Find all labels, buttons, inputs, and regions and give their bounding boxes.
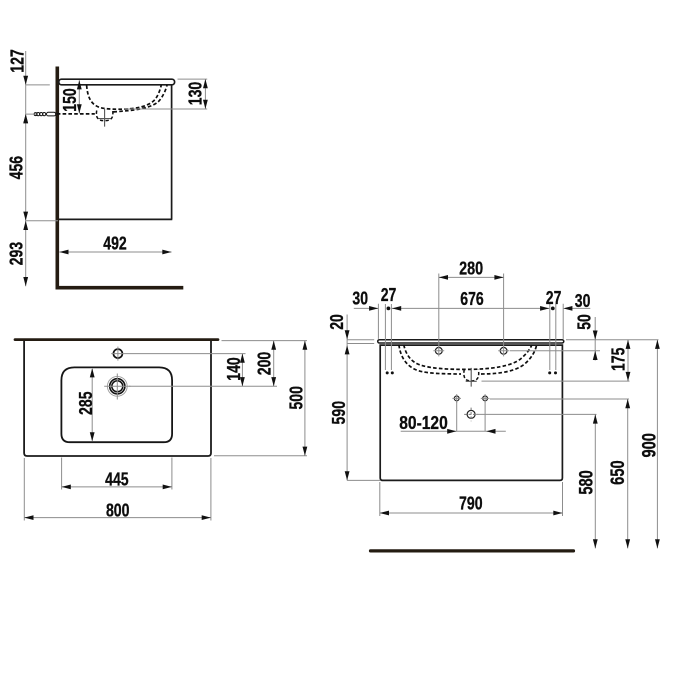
svg-text:200: 200 bbox=[255, 352, 275, 376]
svg-text:285: 285 bbox=[76, 391, 96, 415]
svg-text:456: 456 bbox=[6, 156, 26, 180]
svg-text:590: 590 bbox=[329, 401, 349, 425]
svg-text:280: 280 bbox=[459, 258, 483, 279]
svg-text:30: 30 bbox=[352, 289, 368, 309]
svg-text:20: 20 bbox=[327, 314, 347, 330]
svg-text:900: 900 bbox=[640, 433, 661, 458]
svg-text:175: 175 bbox=[609, 348, 629, 372]
svg-text:500: 500 bbox=[287, 386, 307, 410]
svg-text:800: 800 bbox=[106, 501, 130, 521]
svg-text:676: 676 bbox=[460, 289, 484, 309]
svg-text:127: 127 bbox=[7, 49, 27, 73]
svg-text:445: 445 bbox=[105, 469, 129, 489]
svg-text:130: 130 bbox=[185, 82, 205, 106]
svg-text:150: 150 bbox=[60, 88, 80, 112]
svg-text:50: 50 bbox=[575, 314, 595, 330]
svg-text:650: 650 bbox=[608, 460, 629, 485]
svg-text:492: 492 bbox=[103, 234, 127, 254]
svg-text:27: 27 bbox=[546, 288, 562, 308]
svg-text:30: 30 bbox=[575, 291, 591, 311]
svg-text:140: 140 bbox=[224, 357, 244, 381]
svg-text:27: 27 bbox=[381, 285, 397, 305]
svg-text:790: 790 bbox=[459, 493, 483, 513]
svg-text:293: 293 bbox=[6, 242, 26, 266]
svg-text:80-120: 80-120 bbox=[399, 412, 448, 433]
svg-text:580: 580 bbox=[576, 470, 597, 495]
